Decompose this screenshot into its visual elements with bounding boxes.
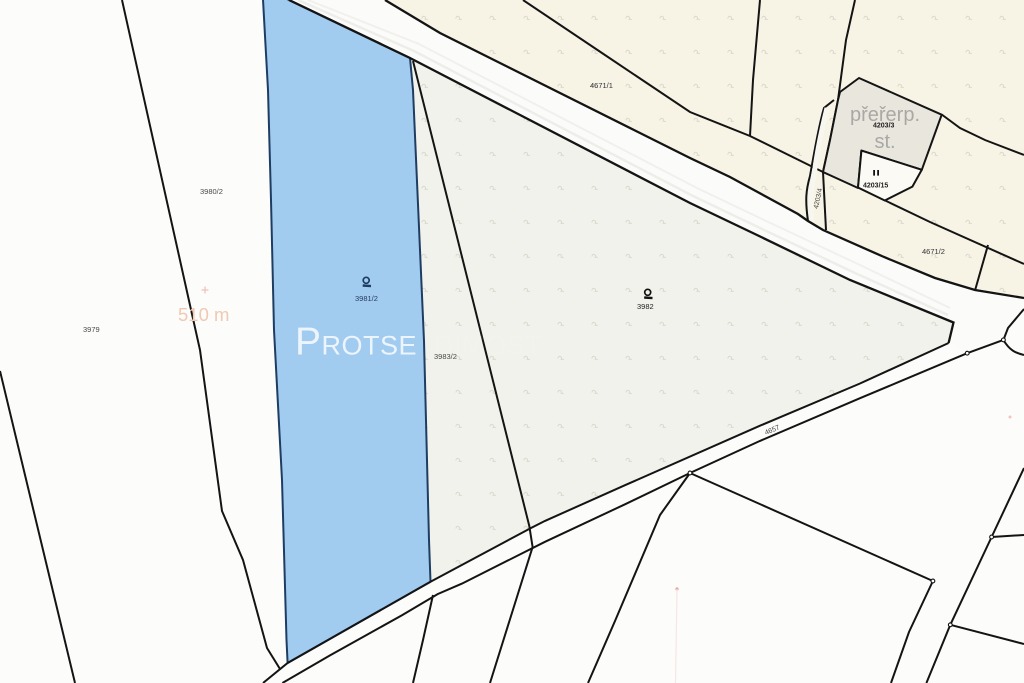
svg-text:3983/2: 3983/2 [434,352,457,361]
svg-text:3980/2: 3980/2 [200,187,223,196]
svg-text:3982: 3982 [637,302,654,311]
svg-text:510 m: 510 m [178,304,229,325]
svg-text:Protse: Protse [295,321,417,364]
svg-text:4671/1: 4671/1 [590,81,613,90]
svg-text:4203/15: 4203/15 [863,183,888,190]
svg-text:přeřerp.: přeřerp. [850,104,920,126]
svg-text:4671/2: 4671/2 [922,247,945,256]
svg-text:3981/2: 3981/2 [355,294,378,303]
svg-text:st.: st. [874,131,895,153]
svg-text:3979: 3979 [83,325,100,334]
